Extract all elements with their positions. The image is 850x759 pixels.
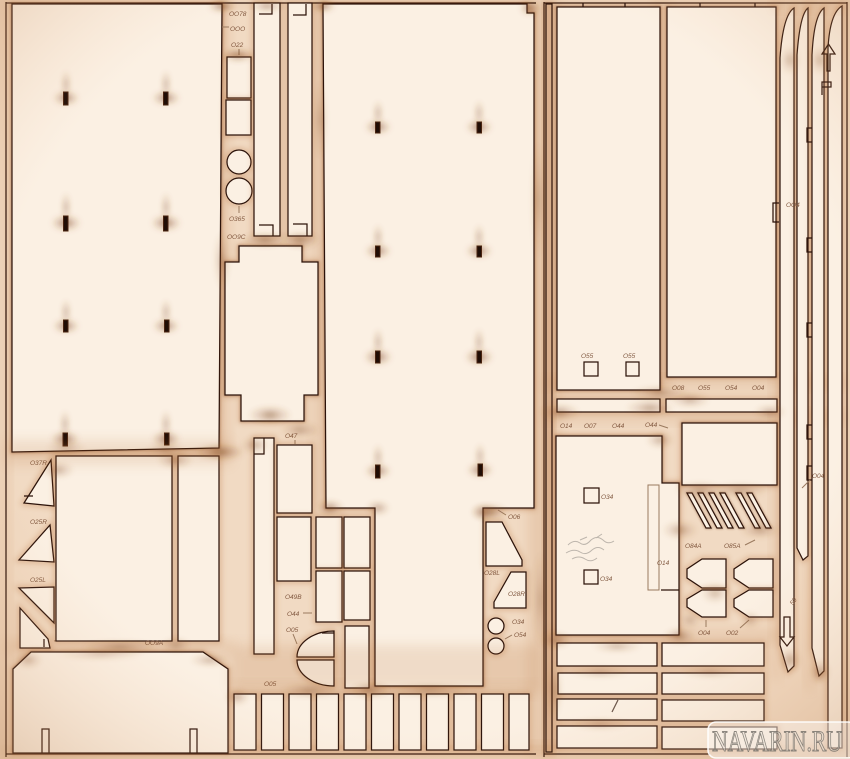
svg-text:NAVARIN.RU: NAVARIN.RU	[712, 725, 842, 758]
